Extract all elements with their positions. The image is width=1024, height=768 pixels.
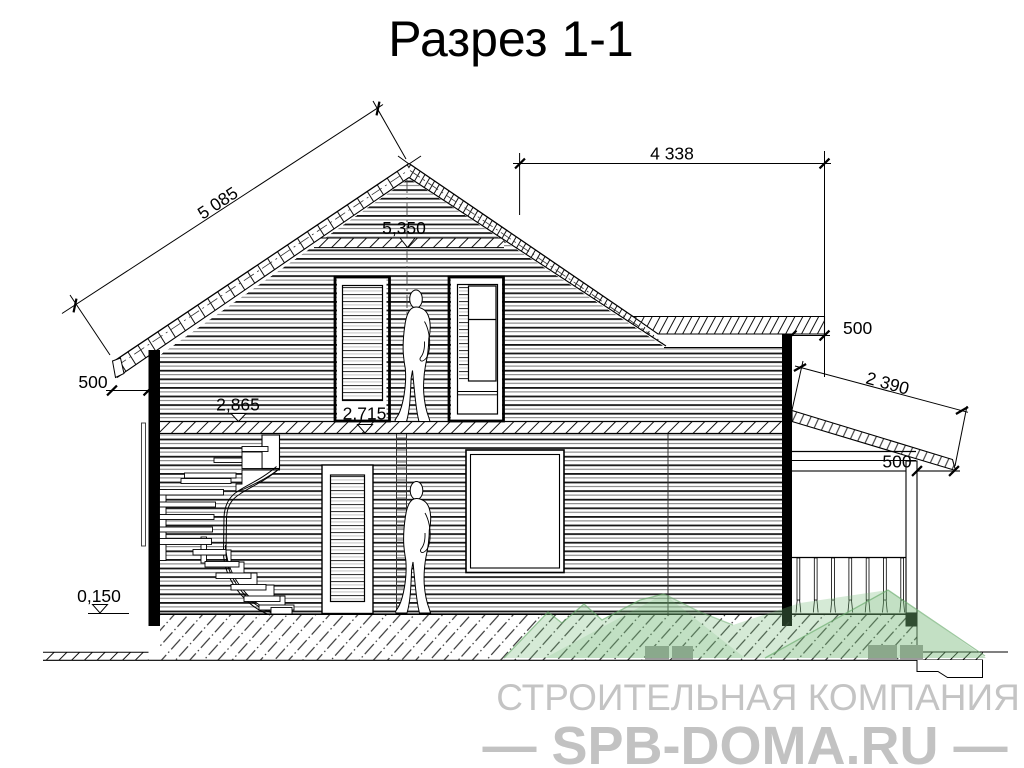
svg-text:СТРОИТЕЛЬНАЯ КОМПАНИЯ: СТРОИТЕЛЬНАЯ КОМПАНИЯ	[496, 677, 1020, 718]
svg-text:0,150: 0,150	[77, 586, 121, 606]
svg-text:2,865: 2,865	[216, 395, 260, 415]
svg-text:2,715: 2,715	[343, 404, 387, 424]
svg-text:4 338: 4 338	[650, 144, 694, 164]
svg-text:2 390: 2 390	[864, 368, 912, 399]
svg-text:500: 500	[882, 452, 911, 472]
svg-text:— SPB-DOMA.RU —: — SPB-DOMA.RU —	[483, 716, 1008, 768]
svg-text:5 085: 5 085	[194, 183, 242, 224]
svg-text:Разрез 1-1: Разрез 1-1	[388, 11, 633, 67]
svg-text:500: 500	[78, 372, 107, 392]
svg-text:5,350: 5,350	[382, 218, 426, 238]
svg-text:500: 500	[843, 318, 872, 338]
